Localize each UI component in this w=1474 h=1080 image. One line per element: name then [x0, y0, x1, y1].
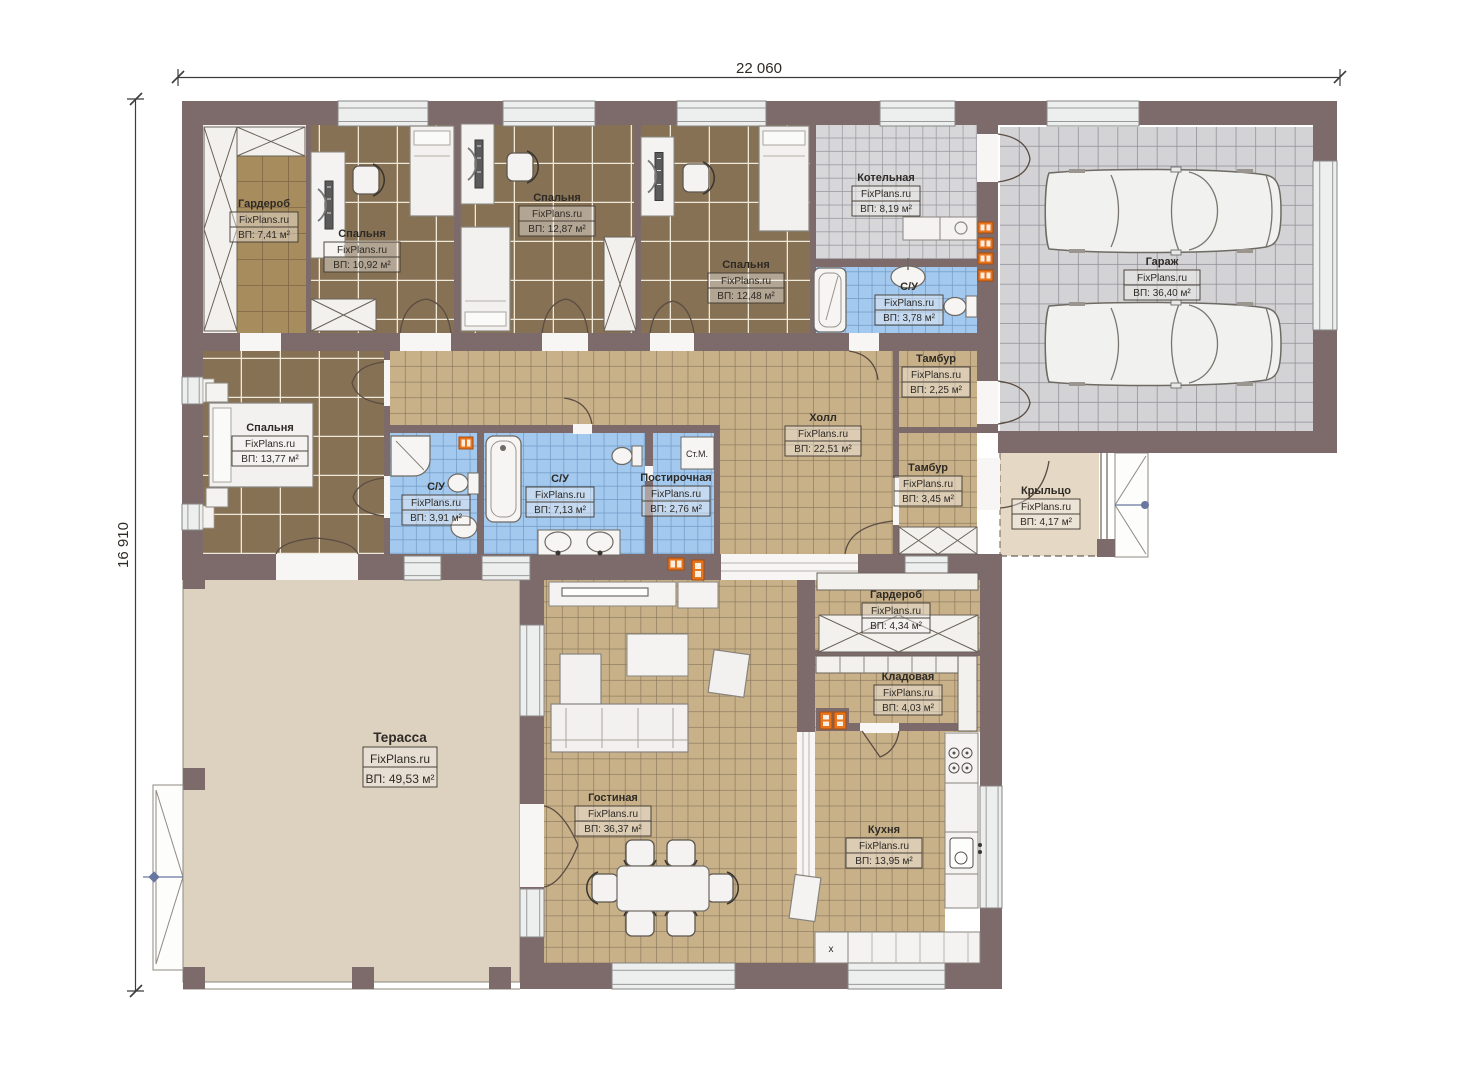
- svg-text:ВП: 4,34 м²: ВП: 4,34 м²: [870, 621, 923, 632]
- svg-text:ВП: 8,19 м²: ВП: 8,19 м²: [860, 204, 913, 215]
- svg-text:FixPlans.ru: FixPlans.ru: [903, 479, 953, 490]
- svg-text:FixPlans.ru: FixPlans.ru: [651, 489, 701, 500]
- svg-text:ВП: 3,91 м²: ВП: 3,91 м²: [410, 513, 463, 524]
- svg-text:FixPlans.ru: FixPlans.ru: [911, 370, 961, 381]
- svg-text:ВП: 22,51 м²: ВП: 22,51 м²: [794, 444, 852, 455]
- svg-text:Холл: Холл: [809, 412, 837, 424]
- svg-text:Спальня: Спальня: [722, 259, 770, 271]
- svg-text:FixPlans.ru: FixPlans.ru: [1137, 273, 1187, 284]
- svg-text:Гардероб: Гардероб: [238, 198, 290, 210]
- svg-text:ВП: 2,76 м²: ВП: 2,76 м²: [650, 504, 703, 515]
- svg-text:ВП: 7,41 м²: ВП: 7,41 м²: [238, 230, 291, 241]
- svg-text:FixPlans.ru: FixPlans.ru: [411, 498, 461, 509]
- svg-text:Постирочная: Постирочная: [640, 472, 711, 484]
- svg-text:ВП: 13,95 м²: ВП: 13,95 м²: [855, 856, 913, 867]
- svg-text:ВП: 10,92 м²: ВП: 10,92 м²: [333, 260, 391, 271]
- svg-text:ВП: 3,45 м²: ВП: 3,45 м²: [902, 494, 955, 505]
- svg-text:FixPlans.ru: FixPlans.ru: [532, 209, 582, 220]
- svg-text:С/У: С/У: [551, 473, 569, 485]
- svg-text:Тамбур: Тамбур: [916, 353, 956, 365]
- svg-text:ВП: 7,13 м²: ВП: 7,13 м²: [534, 505, 587, 516]
- svg-text:FixPlans.ru: FixPlans.ru: [798, 429, 848, 440]
- svg-text:Спальня: Спальня: [533, 192, 581, 204]
- svg-text:16 910: 16 910: [115, 522, 132, 568]
- svg-text:FixPlans.ru: FixPlans.ru: [871, 606, 921, 617]
- svg-text:ВП: 4,17 м²: ВП: 4,17 м²: [1020, 517, 1073, 528]
- svg-text:ВП: 3,78 м²: ВП: 3,78 м²: [883, 313, 936, 324]
- svg-text:FixPlans.ru: FixPlans.ru: [239, 215, 289, 226]
- svg-text:С/У: С/У: [900, 281, 918, 293]
- svg-text:С/У: С/У: [427, 481, 445, 493]
- svg-text:FixPlans.ru: FixPlans.ru: [884, 298, 934, 309]
- svg-text:ВП: 2,25 м²: ВП: 2,25 м²: [910, 385, 963, 396]
- svg-text:FixPlans.ru: FixPlans.ru: [535, 490, 585, 501]
- svg-text:ВП: 12,87 м²: ВП: 12,87 м²: [528, 224, 586, 235]
- svg-text:FixPlans.ru: FixPlans.ru: [337, 245, 387, 256]
- svg-text:ВП: 36,40 м²: ВП: 36,40 м²: [1133, 288, 1191, 299]
- svg-text:FixPlans.ru: FixPlans.ru: [859, 841, 909, 852]
- svg-text:ВП: 12,48 м²: ВП: 12,48 м²: [717, 291, 775, 302]
- svg-text:FixPlans.ru: FixPlans.ru: [861, 189, 911, 200]
- svg-text:Кладовая: Кладовая: [882, 671, 935, 683]
- svg-text:22 060: 22 060: [736, 60, 782, 77]
- svg-text:Спальня: Спальня: [246, 422, 294, 434]
- svg-text:Ст.М.: Ст.М.: [686, 449, 708, 459]
- svg-text:FixPlans.ru: FixPlans.ru: [1021, 502, 1071, 513]
- svg-text:Котельная: Котельная: [857, 172, 915, 184]
- svg-text:FixPlans.ru: FixPlans.ru: [721, 276, 771, 287]
- svg-text:ВП: 4,03 м²: ВП: 4,03 м²: [882, 703, 935, 714]
- svg-text:Терасса: Терасса: [373, 730, 427, 745]
- svg-text:Гардероб: Гардероб: [870, 589, 922, 601]
- svg-text:Гостиная: Гостиная: [588, 792, 638, 804]
- svg-text:Гараж: Гараж: [1146, 256, 1179, 268]
- svg-text:Крыльцо: Крыльцо: [1021, 485, 1071, 497]
- svg-text:х: х: [829, 944, 834, 955]
- svg-text:Кухня: Кухня: [868, 824, 900, 836]
- svg-text:Тамбур: Тамбур: [908, 462, 948, 474]
- svg-text:ВП: 13,77 м²: ВП: 13,77 м²: [241, 454, 299, 465]
- svg-text:FixPlans.ru: FixPlans.ru: [245, 439, 295, 450]
- svg-text:FixPlans.ru: FixPlans.ru: [370, 752, 430, 766]
- svg-text:FixPlans.ru: FixPlans.ru: [883, 688, 933, 699]
- svg-text:FixPlans.ru: FixPlans.ru: [588, 809, 638, 820]
- svg-text:Спальня: Спальня: [338, 228, 386, 240]
- svg-text:ВП: 49,53 м²: ВП: 49,53 м²: [366, 772, 435, 786]
- svg-text:ВП: 36,37 м²: ВП: 36,37 м²: [584, 824, 642, 835]
